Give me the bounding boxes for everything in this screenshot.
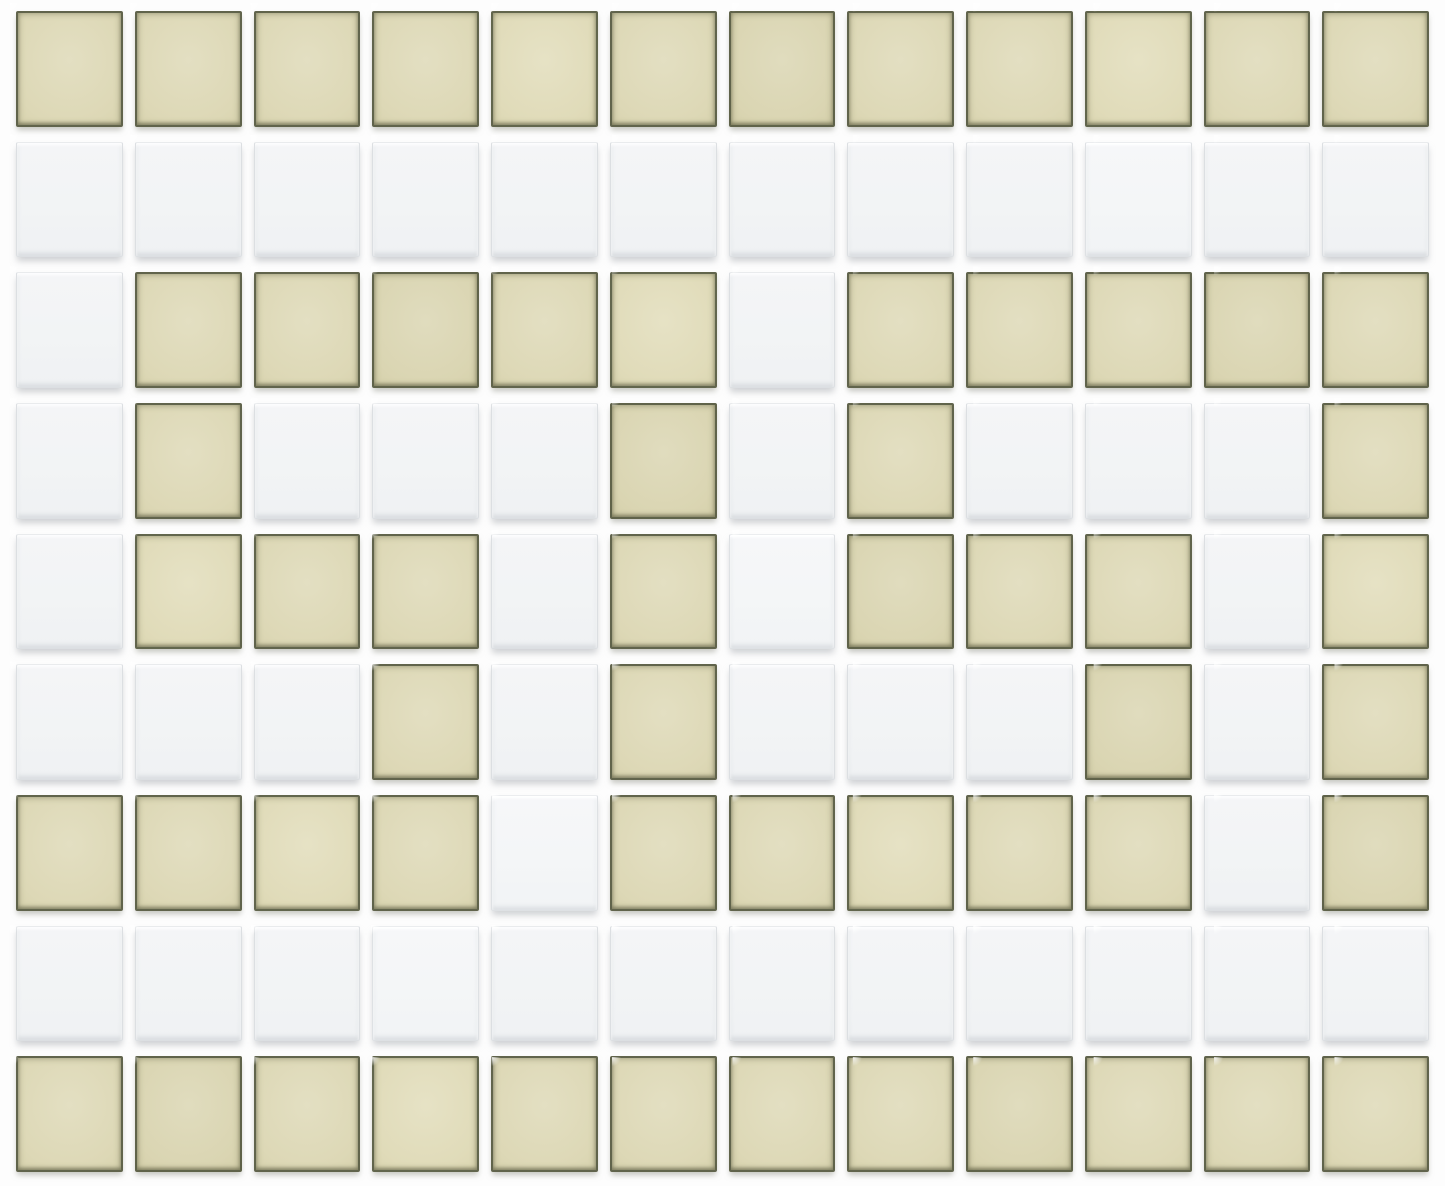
cell-r5c11 [1198, 529, 1317, 660]
cell-r4c9 [960, 398, 1079, 529]
beige-tile [372, 272, 479, 388]
beige-tile [966, 11, 1073, 127]
cell-r2c5 [485, 137, 604, 268]
cell-r7c3 [248, 790, 367, 921]
white-tile [1322, 142, 1429, 258]
cell-r1c5 [485, 6, 604, 137]
cell-r7c8 [841, 790, 960, 921]
white-tile [372, 403, 479, 519]
cell-r3c2 [129, 267, 248, 398]
white-tile [491, 142, 598, 258]
beige-tile [1322, 664, 1429, 780]
cell-r7c7 [723, 790, 842, 921]
cell-r6c10 [1079, 659, 1198, 790]
cell-r3c4 [366, 267, 485, 398]
white-tile [610, 926, 717, 1042]
cell-r2c3 [248, 137, 367, 268]
cell-r1c3 [248, 6, 367, 137]
cell-r1c10 [1079, 6, 1198, 137]
beige-tile [16, 11, 123, 127]
cell-r4c3 [248, 398, 367, 529]
white-tile [1204, 926, 1311, 1042]
beige-tile [135, 534, 242, 650]
white-tile [135, 926, 242, 1042]
beige-tile [1322, 534, 1429, 650]
cell-r7c5 [485, 790, 604, 921]
white-tile [729, 403, 836, 519]
beige-tile [135, 403, 242, 519]
cell-r4c6 [604, 398, 723, 529]
beige-tile [372, 795, 479, 911]
cell-r5c3 [248, 529, 367, 660]
cell-r7c2 [129, 790, 248, 921]
beige-tile [729, 11, 836, 127]
beige-tile [966, 795, 1073, 911]
beige-tile [610, 11, 717, 127]
cell-r6c3 [248, 659, 367, 790]
cell-r2c6 [604, 137, 723, 268]
beige-tile [1322, 1056, 1429, 1172]
beige-tile [254, 534, 361, 650]
cell-r5c8 [841, 529, 960, 660]
cell-r2c2 [129, 137, 248, 268]
white-tile [1322, 926, 1429, 1042]
beige-tile [966, 1056, 1073, 1172]
beige-tile [729, 1056, 836, 1172]
beige-tile [1085, 664, 1192, 780]
beige-tile [491, 272, 598, 388]
cell-r9c1 [10, 1051, 129, 1182]
white-tile [966, 142, 1073, 258]
beige-tile [1085, 1056, 1192, 1172]
beige-tile [135, 1056, 242, 1172]
white-tile [372, 926, 479, 1042]
cell-r3c7 [723, 267, 842, 398]
white-tile [1204, 795, 1311, 911]
white-tile [966, 926, 1073, 1042]
beige-tile [610, 1056, 717, 1172]
beige-tile [847, 403, 954, 519]
mosaic-tile-sheet [0, 0, 1445, 1186]
white-tile [491, 795, 598, 911]
cell-r5c10 [1079, 529, 1198, 660]
white-tile [847, 664, 954, 780]
cell-r5c7 [723, 529, 842, 660]
cell-r2c10 [1079, 137, 1198, 268]
cell-r7c9 [960, 790, 1079, 921]
white-tile [16, 142, 123, 258]
white-tile [254, 664, 361, 780]
cell-r6c1 [10, 659, 129, 790]
white-tile [729, 272, 836, 388]
cell-r7c10 [1079, 790, 1198, 921]
beige-tile [610, 795, 717, 911]
white-tile [135, 142, 242, 258]
cell-r8c4 [366, 921, 485, 1052]
beige-tile [610, 664, 717, 780]
beige-tile [135, 11, 242, 127]
beige-tile [16, 1056, 123, 1172]
beige-tile [254, 795, 361, 911]
cell-r9c6 [604, 1051, 723, 1182]
cell-r2c8 [841, 137, 960, 268]
cell-r6c11 [1198, 659, 1317, 790]
white-tile [491, 534, 598, 650]
cell-r9c9 [960, 1051, 1079, 1182]
beige-tile [847, 11, 954, 127]
beige-tile [372, 664, 479, 780]
cell-r1c9 [960, 6, 1079, 137]
white-tile [1204, 664, 1311, 780]
cell-r1c2 [129, 6, 248, 137]
cell-r3c10 [1079, 267, 1198, 398]
cell-r7c4 [366, 790, 485, 921]
beige-tile [254, 11, 361, 127]
white-tile [847, 926, 954, 1042]
cell-r2c11 [1198, 137, 1317, 268]
cell-r9c10 [1079, 1051, 1198, 1182]
beige-tile [847, 1056, 954, 1172]
cell-r2c9 [960, 137, 1079, 268]
cell-r5c6 [604, 529, 723, 660]
white-tile [610, 142, 717, 258]
cell-r7c12 [1316, 790, 1435, 921]
white-tile [966, 664, 1073, 780]
cell-r9c11 [1198, 1051, 1317, 1182]
cell-r9c5 [485, 1051, 604, 1182]
white-tile [491, 926, 598, 1042]
white-tile [16, 534, 123, 650]
beige-tile [1085, 11, 1192, 127]
cell-r4c1 [10, 398, 129, 529]
cell-r2c1 [10, 137, 129, 268]
white-tile [1085, 403, 1192, 519]
cell-r5c12 [1316, 529, 1435, 660]
beige-tile [491, 1056, 598, 1172]
cell-r8c3 [248, 921, 367, 1052]
cell-r2c7 [723, 137, 842, 268]
cell-r9c8 [841, 1051, 960, 1182]
cell-r8c6 [604, 921, 723, 1052]
cell-r3c9 [960, 267, 1079, 398]
cell-r8c11 [1198, 921, 1317, 1052]
beige-tile [372, 534, 479, 650]
beige-tile [16, 795, 123, 911]
beige-tile [966, 534, 1073, 650]
cell-r1c6 [604, 6, 723, 137]
cell-r8c12 [1316, 921, 1435, 1052]
cell-r6c2 [129, 659, 248, 790]
cell-r3c3 [248, 267, 367, 398]
white-tile [729, 534, 836, 650]
cell-r6c9 [960, 659, 1079, 790]
cell-r8c8 [841, 921, 960, 1052]
cell-r1c7 [723, 6, 842, 137]
cell-r1c1 [10, 6, 129, 137]
white-tile [254, 142, 361, 258]
white-tile [16, 403, 123, 519]
beige-tile [966, 272, 1073, 388]
cell-r6c6 [604, 659, 723, 790]
white-tile [1085, 926, 1192, 1042]
beige-tile [1204, 11, 1311, 127]
cell-r9c4 [366, 1051, 485, 1182]
beige-tile [1085, 795, 1192, 911]
beige-tile [610, 403, 717, 519]
beige-tile [610, 272, 717, 388]
white-tile [16, 664, 123, 780]
cell-r8c2 [129, 921, 248, 1052]
cell-r7c1 [10, 790, 129, 921]
white-tile [254, 926, 361, 1042]
cell-r3c5 [485, 267, 604, 398]
white-tile [1204, 142, 1311, 258]
white-tile [847, 142, 954, 258]
cell-r1c4 [366, 6, 485, 137]
cell-r8c7 [723, 921, 842, 1052]
cell-r6c7 [723, 659, 842, 790]
beige-tile [1322, 11, 1429, 127]
beige-tile [729, 795, 836, 911]
white-tile [372, 142, 479, 258]
beige-tile [372, 1056, 479, 1172]
beige-tile [847, 534, 954, 650]
beige-tile [847, 795, 954, 911]
white-tile [1085, 142, 1192, 258]
mosaic-grid [0, 0, 1445, 1186]
white-tile [729, 142, 836, 258]
white-tile [16, 926, 123, 1042]
white-tile [135, 664, 242, 780]
cell-r3c12 [1316, 267, 1435, 398]
cell-r4c4 [366, 398, 485, 529]
beige-tile [1322, 795, 1429, 911]
white-tile [254, 403, 361, 519]
white-tile [729, 664, 836, 780]
cell-r3c1 [10, 267, 129, 398]
cell-r3c6 [604, 267, 723, 398]
cell-r6c8 [841, 659, 960, 790]
cell-r3c8 [841, 267, 960, 398]
cell-r1c12 [1316, 6, 1435, 137]
cell-r6c12 [1316, 659, 1435, 790]
cell-r5c2 [129, 529, 248, 660]
cell-r5c4 [366, 529, 485, 660]
beige-tile [1085, 272, 1192, 388]
cell-r2c12 [1316, 137, 1435, 268]
cell-r4c2 [129, 398, 248, 529]
white-tile [729, 926, 836, 1042]
white-tile [1204, 534, 1311, 650]
cell-r5c1 [10, 529, 129, 660]
beige-tile [1204, 1056, 1311, 1172]
beige-tile [254, 272, 361, 388]
cell-r6c5 [485, 659, 604, 790]
cell-r1c11 [1198, 6, 1317, 137]
cell-r5c5 [485, 529, 604, 660]
cell-r5c9 [960, 529, 1079, 660]
cell-r9c3 [248, 1051, 367, 1182]
cell-r9c7 [723, 1051, 842, 1182]
cell-r3c11 [1198, 267, 1317, 398]
white-tile [1204, 403, 1311, 519]
cell-r2c4 [366, 137, 485, 268]
beige-tile [254, 1056, 361, 1172]
cell-r7c11 [1198, 790, 1317, 921]
cell-r8c10 [1079, 921, 1198, 1052]
cell-r4c12 [1316, 398, 1435, 529]
beige-tile [491, 11, 598, 127]
cell-r1c8 [841, 6, 960, 137]
beige-tile [1085, 534, 1192, 650]
cell-r9c2 [129, 1051, 248, 1182]
cell-r4c5 [485, 398, 604, 529]
cell-r7c6 [604, 790, 723, 921]
beige-tile [135, 795, 242, 911]
cell-r6c4 [366, 659, 485, 790]
white-tile [16, 272, 123, 388]
cell-r4c10 [1079, 398, 1198, 529]
beige-tile [135, 272, 242, 388]
beige-tile [372, 11, 479, 127]
beige-tile [610, 534, 717, 650]
beige-tile [1322, 403, 1429, 519]
beige-tile [847, 272, 954, 388]
white-tile [491, 664, 598, 780]
cell-r4c8 [841, 398, 960, 529]
cell-r8c5 [485, 921, 604, 1052]
beige-tile [1204, 272, 1311, 388]
cell-r9c12 [1316, 1051, 1435, 1182]
white-tile [966, 403, 1073, 519]
beige-tile [1322, 272, 1429, 388]
cell-r8c1 [10, 921, 129, 1052]
cell-r4c7 [723, 398, 842, 529]
white-tile [491, 403, 598, 519]
cell-r4c11 [1198, 398, 1317, 529]
cell-r8c9 [960, 921, 1079, 1052]
